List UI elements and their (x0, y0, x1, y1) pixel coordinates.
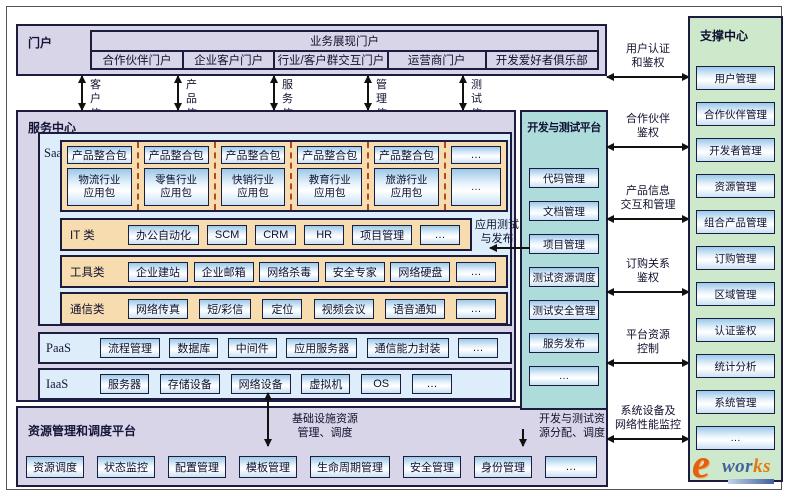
portal-cell: 行业/客户群交互门户 (273, 52, 386, 68)
iaas-box: 网络设备 (231, 374, 291, 394)
support-box: 统计分析 (696, 354, 775, 378)
infra-resource-arrow-icon (267, 393, 269, 446)
it-category-row: IT 类 办公自动化SCMCRMHR项目管理… (60, 218, 472, 251)
portal-cell: 企业客户门户 (182, 52, 273, 68)
resource-box: 状态监控 (97, 456, 155, 478)
portal-table: 业务展现门户 合作伙伴门户企业客户门户行业/客户群交互门户运营商门户开发爱好者俱… (90, 30, 599, 70)
devtest-platform-label: 开发与测试平台 (522, 119, 606, 135)
support-center-label: 支撑中心 (700, 27, 748, 44)
it-category-box: SCM (207, 225, 247, 245)
it-category-box: … (420, 225, 460, 245)
connection-group: 系统设备及 网络性能监控 (607, 404, 689, 440)
it-category-box: 办公自动化 (128, 225, 199, 245)
comm-category-box: 网络传真 (128, 299, 188, 319)
industry-package-box: 旅游行业 应用包 (374, 168, 439, 206)
connection-group: 合作伙伴 鉴权 (607, 112, 689, 148)
it-category-label: IT 类 (62, 227, 118, 243)
saas-panel: SaaS 产品整合包 物流行业 应用包 产品整合包 零售行业 应用包 产品整合包… (38, 132, 512, 326)
industry-package-box: 快销行业 应用包 (221, 168, 286, 206)
tools-category-items: 企业建站企业邮箱网络杀毒安全专家网络硬盘… (118, 262, 506, 282)
paas-box: 应用服务器 (286, 338, 357, 358)
product-package-box: 产品整合包 (374, 146, 439, 164)
saas-package-column: 产品整合包 零售行业 应用包 (137, 142, 214, 210)
resource-box: 模板管理 (239, 456, 297, 478)
tools-category-box: 网络杀毒 (259, 262, 319, 282)
saas-package-column: 产品整合包 教育行业 应用包 (290, 142, 367, 210)
it-category-items: 办公自动化SCMCRMHR项目管理… (118, 225, 470, 245)
support-box: 用户管理 (696, 66, 775, 90)
it-category-box: 项目管理 (352, 225, 412, 245)
industry-package-box: 教育行业 应用包 (297, 168, 362, 206)
iaas-box: 服务器 (100, 374, 149, 394)
it-category-box: HR (304, 225, 344, 245)
devtest-box: 文档管理 (529, 201, 599, 221)
connection-group: 平台资源 控制 (607, 328, 689, 364)
iaas-label: IaaS (40, 377, 88, 392)
paas-panel: PaaS 流程管理数据库中间件应用服务器通信能力封装… (38, 332, 512, 364)
connection-label: 产品信息 交互和管理 (607, 184, 689, 213)
saas-package-column: 产品整合包 快销行业 应用包 (214, 142, 291, 210)
tools-category-box: 安全专家 (325, 262, 385, 282)
comm-category-label: 通信类 (62, 301, 118, 317)
comm-category-row: 通信类 网络传真短/彩信定位视频会议语音通知… (60, 292, 508, 325)
product-package-box: 产品整合包 (221, 146, 286, 164)
product-package-box: … (451, 146, 501, 164)
infra-resource-label: 基础设施资源 管理、调度 (270, 412, 380, 441)
it-category-box: CRM (255, 225, 296, 245)
devtest-box: 项目管理 (529, 234, 599, 254)
portal-row: 合作伙伴门户企业客户门户行业/客户群交互门户运营商门户开发爱好者俱乐部 (92, 52, 597, 68)
portal-header: 业务展现门户 (92, 32, 597, 52)
portal-label: 门户 (28, 34, 52, 51)
support-box: 资源管理 (696, 174, 775, 198)
devtest-box: 测试资源调度 (529, 267, 599, 287)
resource-box: 配置管理 (168, 456, 226, 478)
portal-cell: 开发爱好者俱乐部 (485, 52, 597, 68)
connection-group: 产品信息 交互和管理 (607, 184, 689, 220)
double-arrow-vertical-icon (367, 76, 369, 110)
tools-category-row: 工具类 企业建站企业邮箱网络杀毒安全专家网络硬盘… (60, 255, 508, 288)
industry-package-box: … (451, 168, 501, 206)
connection-label: 平台资源 控制 (607, 328, 689, 357)
support-center-panel: 支撑中心 用户管理合作伙伴管理开发者管理资源管理组合产品管理订购管理区域管理认证… (688, 16, 783, 482)
resource-box: … (545, 456, 597, 478)
devtest-box: … (529, 366, 599, 386)
resource-box: 身份管理 (474, 456, 532, 478)
portal-cell: 运营商门户 (387, 52, 485, 68)
paas-box: 流程管理 (100, 338, 160, 358)
architecture-diagram: 门户 业务展现门户 合作伙伴门户企业客户门户行业/客户群交互门户运营商门户开发爱… (0, 0, 788, 498)
devtest-box: 测试安全管理 (529, 300, 599, 320)
paas-label: PaaS (40, 341, 88, 356)
saas-package-column: … … (444, 142, 506, 210)
connection-group: 订购关系 鉴权 (607, 257, 689, 293)
service-center-panel: 服务中心 SaaS 产品整合包 物流行业 应用包 产品整合包 零售行业 应用包 … (16, 110, 516, 402)
support-box: 认证鉴权 (696, 318, 775, 342)
double-arrow-vertical-icon (462, 76, 464, 110)
double-arrow-horizontal-icon (607, 362, 689, 364)
product-package-box: 产品整合包 (297, 146, 362, 164)
double-arrow-horizontal-icon (607, 76, 689, 78)
support-items: 用户管理合作伙伴管理开发者管理资源管理组合产品管理订购管理区域管理认证鉴权统计分… (696, 66, 775, 450)
connection-group: 用户认证 和鉴权 (607, 42, 689, 78)
devtest-box: 代码管理 (529, 168, 599, 188)
saas-package-grid: 产品整合包 物流行业 应用包 产品整合包 零售行业 应用包 产品整合包 快销行业… (60, 140, 508, 212)
connection-label: 订购关系 鉴权 (607, 257, 689, 286)
app-test-release-label: 应用测试 与发布 (468, 218, 526, 247)
industry-package-box: 物流行业 应用包 (67, 168, 132, 206)
comm-category-items: 网络传真短/彩信定位视频会议语音通知… (118, 299, 506, 319)
support-box: 开发者管理 (696, 138, 775, 162)
tools-category-box: … (456, 262, 496, 282)
paas-box: 中间件 (228, 338, 277, 358)
double-arrow-horizontal-icon (607, 146, 689, 148)
double-arrow-horizontal-icon (607, 291, 689, 293)
paas-box: 通信能力封装 (367, 338, 449, 358)
iaas-box: OS (361, 374, 401, 394)
devtest-platform-panel: 开发与测试平台 代码管理文档管理项目管理测试资源调度测试安全管理服务发布… (520, 110, 608, 410)
comm-category-box: 视频会议 (314, 299, 374, 319)
iaas-box: 虚拟机 (301, 374, 350, 394)
resource-items: 资源调度状态监控配置管理模板管理生命周期管理安全管理身份管理… (26, 456, 596, 478)
double-arrow-horizontal-icon (607, 438, 689, 440)
app-test-release-arrow-icon (490, 247, 530, 249)
industry-package-box: 零售行业 应用包 (144, 168, 209, 206)
saas-package-column: 产品整合包 旅游行业 应用包 (367, 142, 444, 210)
comm-category-box: 定位 (262, 299, 302, 319)
tools-category-box: 网络硬盘 (390, 262, 450, 282)
comm-category-box: 短/彩信 (199, 299, 251, 319)
devtest-items: 代码管理文档管理项目管理测试资源调度测试安全管理服务发布… (529, 168, 599, 386)
devtest-alloc-arrow-icon (522, 429, 524, 446)
devtest-box: 服务发布 (529, 333, 599, 353)
iaas-items: 服务器存储设备网络设备虚拟机OS… (88, 374, 510, 394)
portal-panel: 门户 业务展现门户 合作伙伴门户企业客户门户行业/客户群交互门户运营商门户开发爱… (16, 24, 607, 76)
tools-category-label: 工具类 (62, 264, 118, 280)
double-arrow-vertical-icon (81, 76, 83, 110)
saas-package-column: 产品整合包 物流行业 应用包 (62, 142, 137, 210)
support-box: 系统管理 (696, 390, 775, 414)
support-box: 合作伙伴管理 (696, 102, 775, 126)
product-package-box: 产品整合包 (144, 146, 209, 164)
connection-label: 合作伙伴 鉴权 (607, 112, 689, 141)
double-arrow-vertical-icon (273, 76, 275, 110)
connection-label: 系统设备及 网络性能监控 (607, 404, 689, 433)
iaas-panel: IaaS 服务器存储设备网络设备虚拟机OS… (38, 368, 512, 400)
paas-items: 流程管理数据库中间件应用服务器通信能力封装… (88, 338, 510, 358)
iaas-box: 存储设备 (160, 374, 220, 394)
iaas-box: … (412, 374, 452, 394)
double-arrow-vertical-icon (177, 76, 179, 110)
paas-box: … (458, 338, 498, 358)
connection-label: 用户认证 和鉴权 (607, 42, 689, 71)
support-box: 区域管理 (696, 282, 775, 306)
resource-platform-label: 资源管理和调度平台 (28, 422, 136, 439)
resource-box: 资源调度 (26, 456, 84, 478)
double-arrow-horizontal-icon (607, 218, 689, 220)
comm-category-box: … (456, 299, 496, 319)
resource-box: 生命周期管理 (310, 456, 390, 478)
tools-category-box: 企业建站 (128, 262, 188, 282)
paas-box: 数据库 (169, 338, 218, 358)
resource-box: 安全管理 (403, 456, 461, 478)
tools-category-box: 企业邮箱 (194, 262, 254, 282)
support-box: … (696, 426, 775, 450)
support-box: 订购管理 (696, 246, 775, 270)
portal-cell: 合作伙伴门户 (92, 52, 182, 68)
support-box: 组合产品管理 (696, 210, 775, 234)
product-package-box: 产品整合包 (67, 146, 132, 164)
comm-category-box: 语音通知 (385, 299, 445, 319)
